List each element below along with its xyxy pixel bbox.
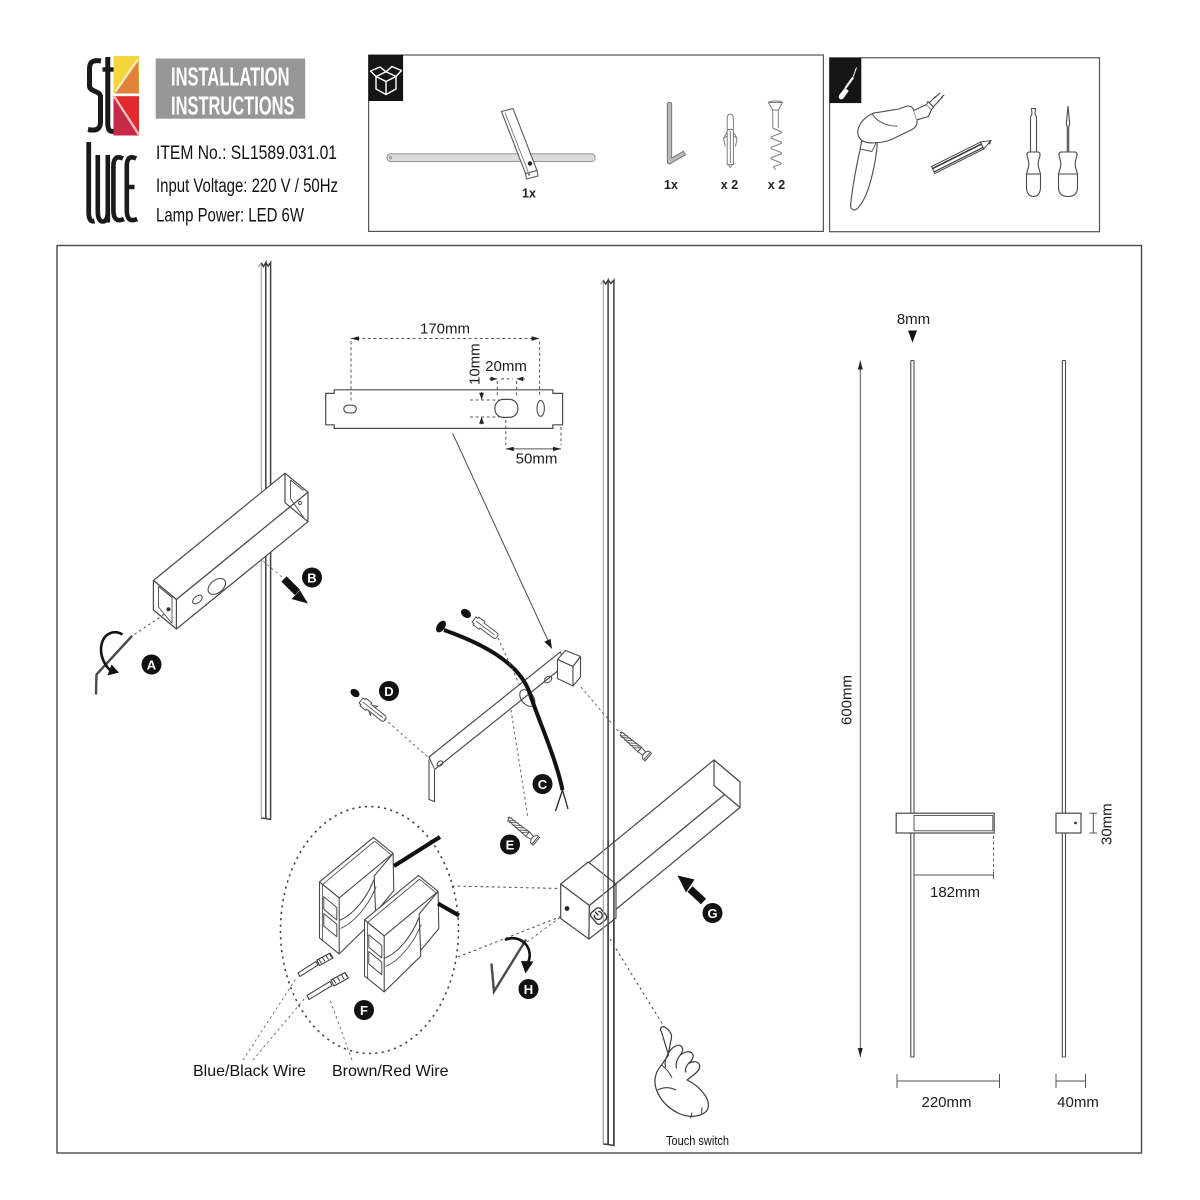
svg-text:A: A: [147, 658, 157, 673]
svg-text:D: D: [384, 684, 393, 699]
svg-text:Brown/Red Wire: Brown/Red Wire: [332, 1063, 449, 1080]
svg-text:F: F: [360, 1003, 368, 1018]
svg-text:INSTALLATION: INSTALLATION: [171, 64, 290, 92]
svg-text:50mm: 50mm: [516, 451, 558, 468]
svg-text:Input Voltage: 220 V / 50Hz: Input Voltage: 220 V / 50Hz: [156, 176, 338, 197]
svg-text:E: E: [506, 838, 515, 853]
svg-text:C: C: [538, 777, 548, 792]
svg-text:Lamp Power: LED 6W: Lamp Power: LED 6W: [156, 206, 304, 227]
svg-text:20mm: 20mm: [485, 358, 527, 375]
svg-text:Touch switch: Touch switch: [666, 1134, 729, 1148]
svg-text:1x: 1x: [522, 187, 536, 201]
svg-text:B: B: [307, 571, 316, 586]
svg-text:40mm: 40mm: [1057, 1094, 1099, 1111]
svg-text:30mm: 30mm: [1099, 803, 1116, 845]
svg-text:Blue/Black Wire: Blue/Black Wire: [193, 1063, 306, 1080]
svg-text:10mm: 10mm: [467, 343, 484, 385]
svg-text:600mm: 600mm: [839, 675, 856, 725]
svg-text:INSTRUCTIONS: INSTRUCTIONS: [171, 93, 295, 121]
svg-text:220mm: 220mm: [921, 1094, 971, 1111]
svg-text:H: H: [524, 982, 533, 997]
svg-text:8mm: 8mm: [897, 311, 930, 328]
svg-text:1x: 1x: [664, 178, 678, 192]
svg-text:x 2: x 2: [721, 178, 738, 192]
svg-text:ITEM No.: SL1589.031.01: ITEM No.: SL1589.031.01: [156, 143, 337, 164]
svg-text:x 2: x 2: [768, 178, 785, 192]
svg-text:G: G: [707, 906, 717, 921]
svg-text:170mm: 170mm: [420, 321, 470, 338]
svg-text:182mm: 182mm: [930, 884, 980, 901]
